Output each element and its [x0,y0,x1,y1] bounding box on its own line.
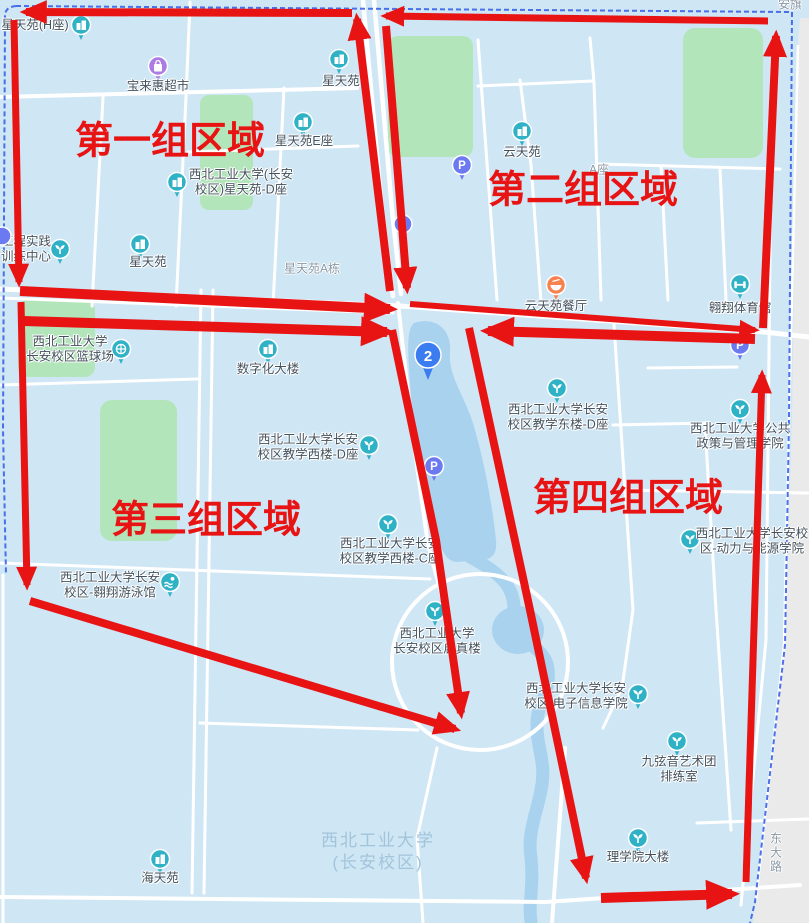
annotation-arrow [386,26,407,288]
annotation-arrow [488,331,755,339]
region-label-4: 第四组区域 [533,467,723,522]
annotation-arrow [746,375,762,882]
annotation-arrow [14,20,19,282]
annotation-arrow [20,291,390,309]
annotation-arrow [23,321,387,332]
annotation-arrow [469,328,586,878]
annotation-arrow [386,16,768,21]
region-label-1: 第一组区域 [75,110,265,165]
annotation-arrow [21,302,27,585]
annotation-arrow [601,894,732,898]
map-canvas[interactable]: 西北工业大学 (长安校区) 星天苑(H座) 宝来惠超市 星天苑 星天苑E座 西北… [0,0,809,923]
annotation-arrow [392,330,461,713]
region-label-2: 第二组区域 [488,159,678,214]
region-label-3: 第三组区域 [111,489,301,544]
annotation-arrow [410,304,755,330]
annotation-arrow [763,36,776,328]
annotation-arrow [26,12,352,13]
annotation-arrow [30,601,455,729]
